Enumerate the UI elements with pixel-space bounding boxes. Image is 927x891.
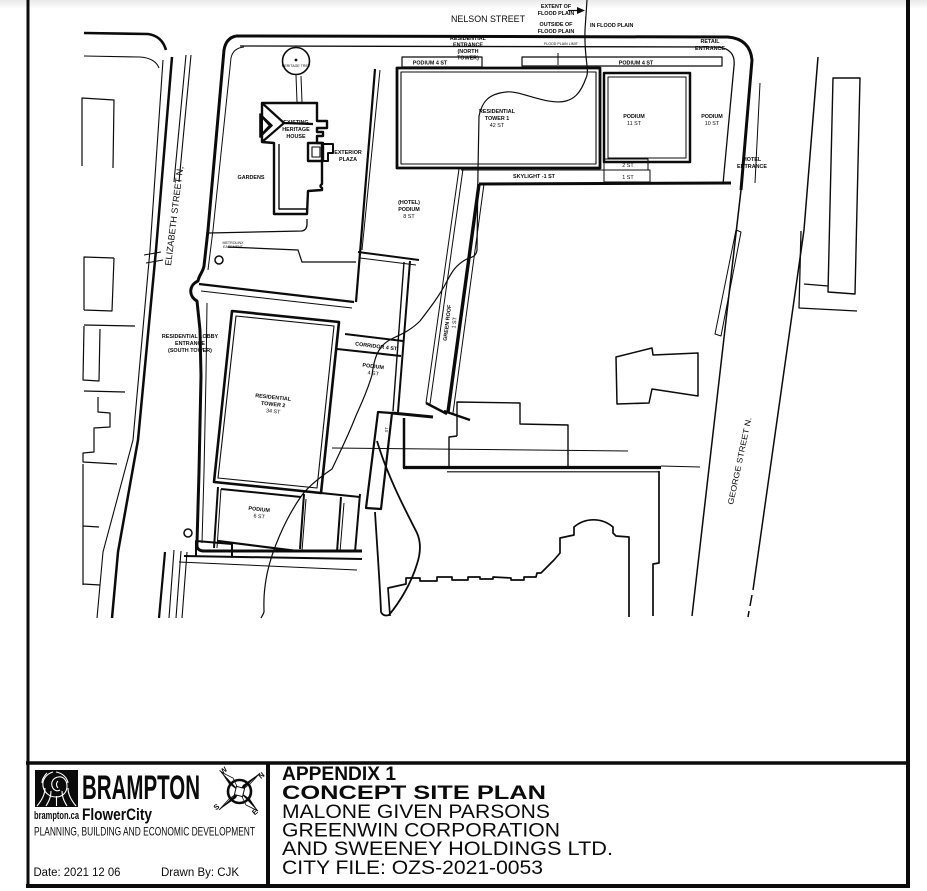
svg-text:NELSON STREET: NELSON STREET	[451, 14, 525, 25]
svg-text:PODIUM 4 ST: PODIUM 4 ST	[413, 61, 448, 67]
svg-text:PODIUM 4 ST: PODIUM 4 ST	[619, 61, 654, 67]
svg-text:8 ST: 8 ST	[403, 214, 415, 220]
svg-text:ENTRANCE: ENTRANCE	[175, 341, 205, 347]
svg-text:RESIDENTIAL: RESIDENTIAL	[479, 109, 516, 115]
svg-text:2 ST: 2 ST	[622, 163, 634, 169]
svg-text:brampton.ca: brampton.ca	[34, 810, 80, 822]
svg-text:CITY FILE: OZS-2021-0053: CITY FILE: OZS-2021-0053	[282, 858, 543, 879]
svg-text:RESIDENTIAL: RESIDENTIAL	[450, 36, 487, 42]
svg-text:RESIDENTIAL LOBBY: RESIDENTIAL LOBBY	[162, 334, 219, 340]
svg-text:11 ST: 11 ST	[627, 121, 642, 127]
svg-text:RETAIL: RETAIL	[700, 39, 720, 45]
svg-text:HERITAGE: HERITAGE	[282, 127, 310, 133]
svg-text:ST: ST	[384, 426, 390, 432]
svg-text:EXTENT OF: EXTENT OF	[541, 4, 572, 10]
svg-text:CONCEPT SITE PLAN: CONCEPT SITE PLAN	[282, 783, 546, 804]
svg-text:ENTRANCE: ENTRANCE	[737, 164, 767, 170]
svg-text:FLOOD PLAIN LIMIT: FLOOD PLAIN LIMIT	[544, 42, 579, 46]
svg-text:PODIUM: PODIUM	[398, 207, 420, 213]
svg-text:HERITAGE TREE: HERITAGE TREE	[282, 64, 311, 68]
svg-text:1 ST: 1 ST	[622, 175, 634, 181]
svg-text:EASEMENT: EASEMENT	[223, 245, 244, 249]
svg-text:ENTRANCE: ENTRANCE	[695, 46, 725, 52]
svg-text:EXISTING: EXISTING	[283, 120, 308, 126]
svg-text:10 ST: 10 ST	[705, 121, 720, 127]
svg-text:TOWER 1: TOWER 1	[485, 116, 509, 122]
svg-text:APPENDIX 1: APPENDIX 1	[282, 764, 396, 785]
svg-text:(HOTEL): (HOTEL)	[398, 200, 420, 206]
svg-text:6 ST: 6 ST	[253, 513, 266, 520]
svg-text:ENTRANCE: ENTRANCE	[453, 43, 483, 49]
svg-text:BRAMPTON: BRAMPTON	[82, 769, 200, 807]
svg-text:FLOOD PLAIN: FLOOD PLAIN	[538, 11, 575, 17]
svg-text:PLAZA: PLAZA	[339, 157, 357, 163]
svg-text:PLANNING, BUILDING AND ECONOMI: PLANNING, BUILDING AND ECONOMIC DEVELOPM…	[34, 826, 255, 839]
svg-text:FlowerCity: FlowerCity	[82, 805, 152, 824]
svg-text:SKYLIGHT -1 ST: SKYLIGHT -1 ST	[513, 174, 556, 180]
svg-text:OUTSIDE OF: OUTSIDE OF	[540, 22, 574, 28]
svg-text:HOTEL: HOTEL	[743, 157, 762, 163]
svg-text:Date: 2021 12 06: Date: 2021 12 06	[34, 867, 121, 879]
svg-text:42 ST: 42 ST	[490, 123, 505, 129]
svg-text:IN FLOOD PLAIN: IN FLOOD PLAIN	[590, 23, 634, 29]
svg-text:TOWER): TOWER)	[457, 56, 479, 62]
svg-text:(NORTH: (NORTH	[458, 49, 479, 55]
svg-text:Drawn By: CJK: Drawn By: CJK	[161, 867, 239, 879]
svg-text:AND SWEENEY HOLDINGS LTD.: AND SWEENEY HOLDINGS LTD.	[282, 839, 613, 860]
svg-text:GARDENS: GARDENS	[238, 175, 265, 181]
svg-text:PODIUM: PODIUM	[623, 114, 645, 120]
svg-text:FLOOD PLAIN: FLOOD PLAIN	[538, 29, 575, 35]
svg-text:(SOUTH TOWER): (SOUTH TOWER)	[168, 348, 212, 354]
svg-text:EXTERIOR: EXTERIOR	[334, 150, 362, 156]
svg-text:HOUSE: HOUSE	[286, 134, 306, 140]
svg-text:PODIUM: PODIUM	[701, 114, 723, 120]
